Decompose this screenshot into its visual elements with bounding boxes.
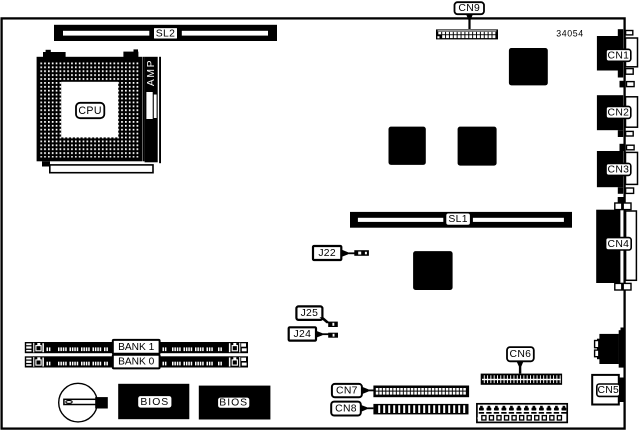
svg-text:CPU: CPU — [78, 105, 102, 117]
svg-text:CN6: CN6 — [510, 349, 532, 360]
svg-text:CN2: CN2 — [608, 107, 630, 118]
svg-text:CN3: CN3 — [608, 164, 630, 175]
svg-text:CN4: CN4 — [608, 239, 630, 250]
svg-text:CN5: CN5 — [597, 385, 619, 396]
svg-text:SL2: SL2 — [156, 28, 175, 39]
svg-text:CN8: CN8 — [335, 404, 357, 415]
svg-text:CN1: CN1 — [608, 50, 630, 61]
svg-text:BANK 1: BANK 1 — [118, 342, 155, 353]
svg-text:BANK 0: BANK 0 — [118, 357, 155, 368]
svg-text:BIOS: BIOS — [219, 398, 248, 409]
svg-text:BIOS: BIOS — [140, 397, 169, 408]
svg-text:CN7: CN7 — [336, 386, 358, 397]
svg-text:34054: 34054 — [556, 28, 583, 38]
svg-text:SL1: SL1 — [448, 214, 467, 225]
svg-text:AMP: AMP — [146, 59, 157, 86]
svg-text:J25: J25 — [301, 308, 319, 319]
svg-text:J24: J24 — [294, 329, 312, 340]
svg-text:CN9: CN9 — [458, 3, 480, 14]
svg-text:J22: J22 — [318, 248, 336, 259]
